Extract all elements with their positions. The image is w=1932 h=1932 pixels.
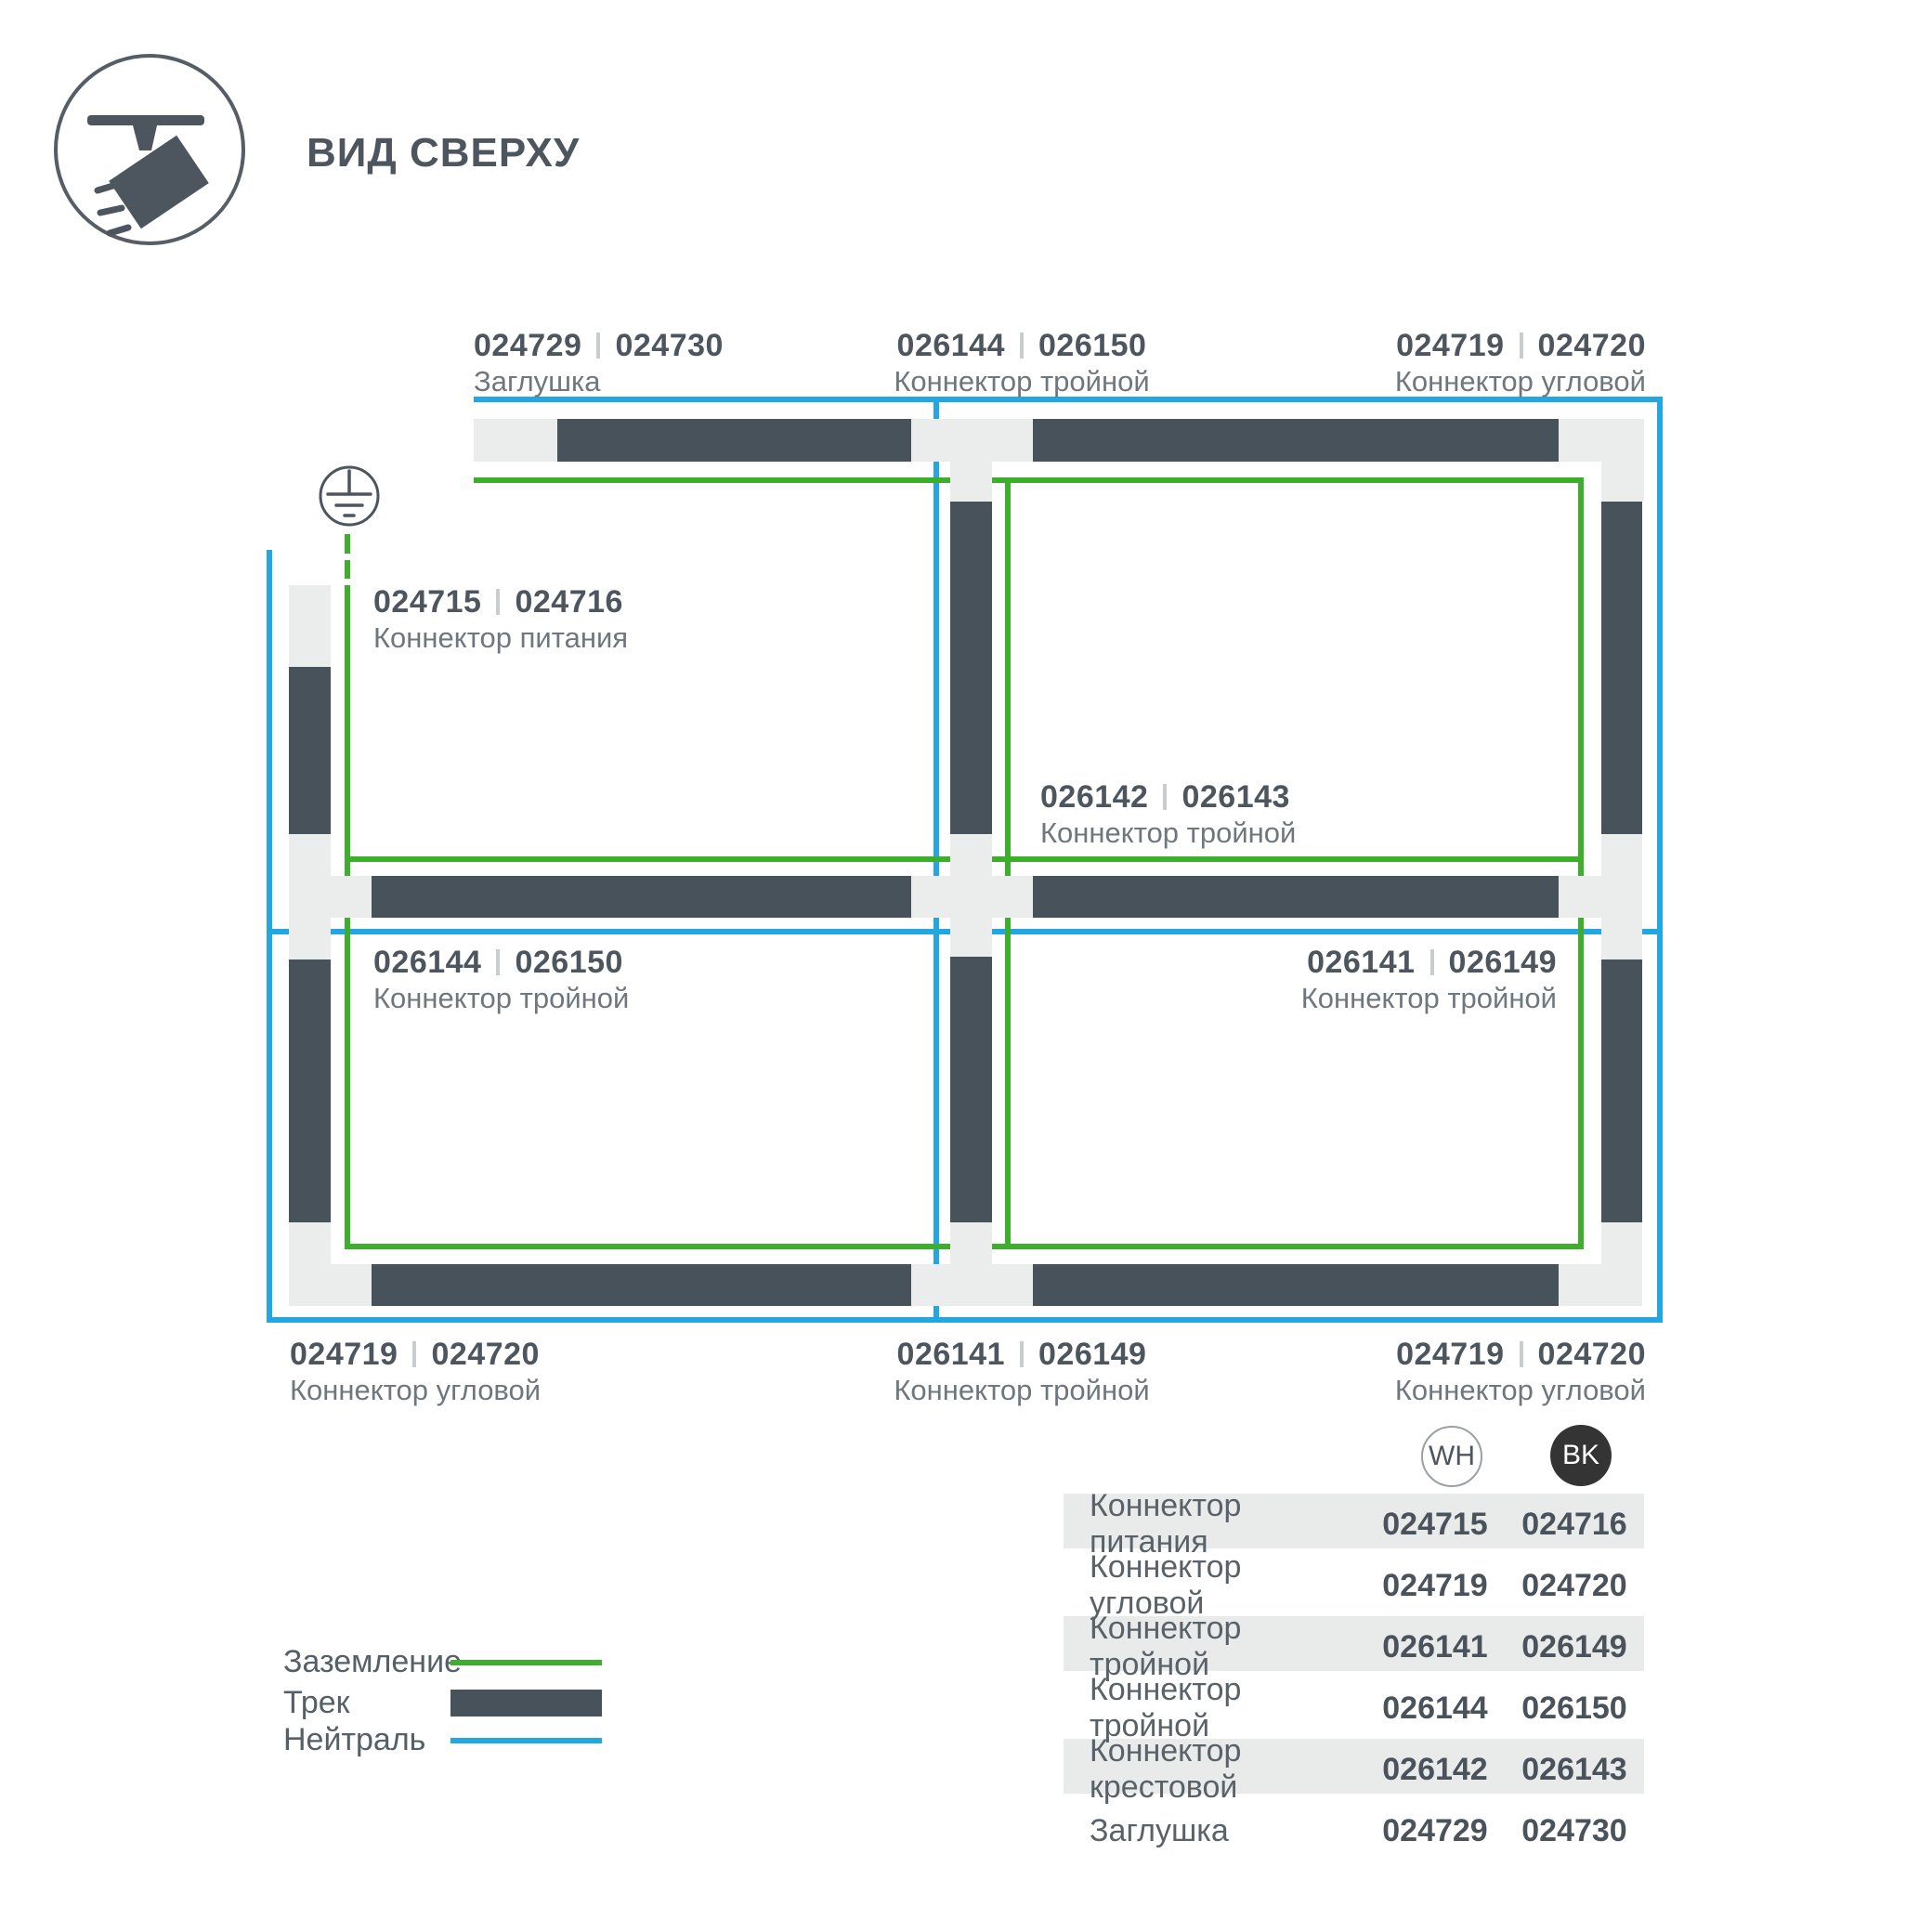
separator [1520, 1341, 1523, 1367]
part-number-bk: 024716 [515, 583, 622, 620]
part-number-bk: 024720 [431, 1336, 539, 1373]
part-number-bk: 026149 [1038, 1336, 1146, 1373]
part-name: Коннектор тройной [1129, 983, 1557, 1014]
separator [1020, 1341, 1024, 1367]
t-connector-right [1601, 834, 1642, 959]
part-number-wh: 024719 [290, 1336, 398, 1373]
row-bk-number: 024716 [1514, 1507, 1635, 1543]
neutral-line-left [267, 550, 272, 1323]
track-segment [372, 1264, 911, 1306]
part-name: Коннектор угловой [1219, 1375, 1646, 1406]
neutral-line-right [1657, 397, 1663, 1323]
corner-connector-top-right [1559, 419, 1644, 462]
label-t-connector-right: 026141026149 Коннектор тройной [1129, 944, 1557, 1014]
legend-label: Заземление [283, 1644, 450, 1680]
separator [496, 949, 500, 975]
neutral-line-swatch [450, 1738, 602, 1743]
part-number-bk: 026149 [1449, 944, 1557, 981]
track-segment [950, 957, 992, 1222]
legend-item-track: Трек [283, 1685, 602, 1721]
track-segment [1033, 419, 1559, 462]
corner-connector-bottom-right-stub [1559, 1264, 1642, 1306]
part-name: Коннектор тройной [1040, 817, 1412, 849]
part-name: Коннектор тройной [836, 366, 1207, 398]
row-bk-number: 024720 [1514, 1568, 1635, 1604]
part-number-bk: 024720 [1538, 327, 1646, 364]
t-connector-top-stub [950, 462, 992, 502]
t-connector-left [289, 834, 331, 959]
row-bk-number: 026143 [1514, 1752, 1635, 1788]
track-segment [289, 667, 331, 834]
track-segment [372, 876, 911, 918]
legend-item-neutral: Нейтраль [283, 1722, 602, 1758]
part-number-bk: 026143 [1181, 778, 1289, 816]
part-number-bk: 024720 [1538, 1336, 1646, 1373]
row-wh-number: 024719 [1356, 1568, 1514, 1604]
row-bk-number: 024730 [1514, 1813, 1635, 1849]
separator [1520, 333, 1523, 359]
track-segment [1601, 959, 1642, 1222]
page: ВИД СВЕРХУ [0, 0, 1932, 1932]
part-name: Коннектор угловой [1219, 366, 1646, 398]
part-number-wh: 026142 [1040, 778, 1148, 816]
part-name: Коннектор угловой [290, 1375, 661, 1406]
row-bk-number: 026150 [1514, 1690, 1635, 1727]
part-number-wh: 024729 [474, 327, 581, 364]
track-segment [557, 419, 911, 462]
row-wh-number: 024729 [1356, 1813, 1514, 1849]
end-cap-connector [474, 419, 557, 462]
legend-item-ground: Заземление [283, 1644, 602, 1680]
power-connector [289, 585, 331, 667]
t-connector-left-stub [331, 876, 372, 918]
separator [1020, 333, 1024, 359]
legend-label: Нейтраль [283, 1722, 450, 1758]
track-segment [289, 959, 331, 1222]
row-wh-number: 024715 [1356, 1507, 1514, 1543]
part-number-wh: 026144 [897, 327, 1005, 364]
label-power-connector: 024715024716 Коннектор питания [373, 583, 745, 654]
part-number-bk: 024730 [615, 327, 723, 364]
ground-icon [316, 463, 383, 530]
t-connector-top [911, 419, 1033, 462]
table-row: Коннектор тройной 026144 026150 [1064, 1677, 1644, 1739]
part-number-wh: 024719 [1396, 327, 1504, 364]
separator [412, 1341, 416, 1367]
t-connector-bottom-stub [950, 1222, 992, 1264]
ground-line-swatch [450, 1660, 602, 1665]
part-name: Заглушка [474, 366, 845, 398]
separator [1163, 784, 1167, 810]
neutral-line-bottom [267, 1317, 1663, 1323]
part-number-bk: 026150 [515, 944, 622, 981]
t-connector-bottom [911, 1264, 1033, 1306]
ground-line-top [474, 477, 1584, 483]
table-row: Коннектор угловой 024719 024720 [1064, 1555, 1644, 1616]
chip-label-bk: BK [1562, 1440, 1599, 1471]
table-row: Заглушка 024729 024730 [1064, 1800, 1644, 1861]
corner-connector-bottom-left-stub [289, 1264, 372, 1306]
track-segment [1033, 1264, 1559, 1306]
label-corner-top-right: 024719024720 Коннектор угловой [1219, 327, 1646, 398]
part-number-wh: 026141 [897, 1336, 1005, 1373]
track-segment [1033, 876, 1559, 918]
ground-line-dash-1 [345, 534, 350, 554]
ground-line-dash-2 [345, 560, 350, 579]
separator [496, 589, 500, 615]
part-name: Коннектор питания [373, 622, 745, 654]
track-segment [1601, 502, 1642, 834]
table-row: Коннектор питания 024715 024716 [1064, 1494, 1644, 1555]
row-name: Коннектор крестовой [1090, 1733, 1356, 1806]
separator [596, 333, 600, 359]
label-corner-bottom-left: 024719024720 Коннектор угловой [290, 1336, 661, 1406]
legend-label: Трек [283, 1685, 450, 1721]
label-t-connector-top: 026144026150 Коннектор тройной [836, 327, 1207, 398]
ground-line-right [1578, 477, 1584, 1249]
track-bar-swatch [450, 1690, 602, 1717]
cross-connector-center-stub [950, 834, 992, 957]
color-chip-black: BK [1550, 1425, 1612, 1486]
row-bk-number: 026149 [1514, 1629, 1635, 1665]
part-number-table: Коннектор питания 024715 024716 Коннекто… [1064, 1494, 1644, 1861]
part-number-wh: 026144 [373, 944, 481, 981]
label-end-cap-top: 024729024730 Заглушка [474, 327, 845, 398]
row-wh-number: 026141 [1356, 1629, 1514, 1665]
separator [1430, 949, 1434, 975]
label-t-connector-bottom: 026141026149 Коннектор тройной [836, 1336, 1207, 1406]
part-name: Коннектор тройной [836, 1375, 1207, 1406]
label-t-connector-left: 026144026150 Коннектор тройной [373, 944, 745, 1014]
t-connector-right-stub [1559, 876, 1601, 918]
chip-label-wh: WH [1429, 1441, 1475, 1472]
corner-connector-top-right-stub [1601, 462, 1644, 502]
label-cross-connector: 026142026143 Коннектор тройной [1040, 778, 1412, 849]
row-name: Заглушка [1090, 1813, 1356, 1849]
table-row: Коннектор тройной 026141 026149 [1064, 1616, 1644, 1677]
ground-line-center [1005, 480, 1011, 1249]
table-row: Коннектор крестовой 026142 026143 [1064, 1739, 1644, 1800]
track-segment [950, 502, 992, 834]
row-wh-number: 026142 [1356, 1752, 1514, 1788]
label-corner-bottom-right: 024719024720 Коннектор угловой [1219, 1336, 1646, 1406]
part-number-wh: 024715 [373, 583, 481, 620]
part-number-wh: 026141 [1307, 944, 1415, 981]
part-number-wh: 024719 [1396, 1336, 1504, 1373]
color-chip-white: WH [1421, 1426, 1482, 1487]
part-number-bk: 026150 [1038, 327, 1146, 364]
row-wh-number: 026144 [1356, 1690, 1514, 1727]
part-name: Коннектор тройной [373, 983, 745, 1014]
